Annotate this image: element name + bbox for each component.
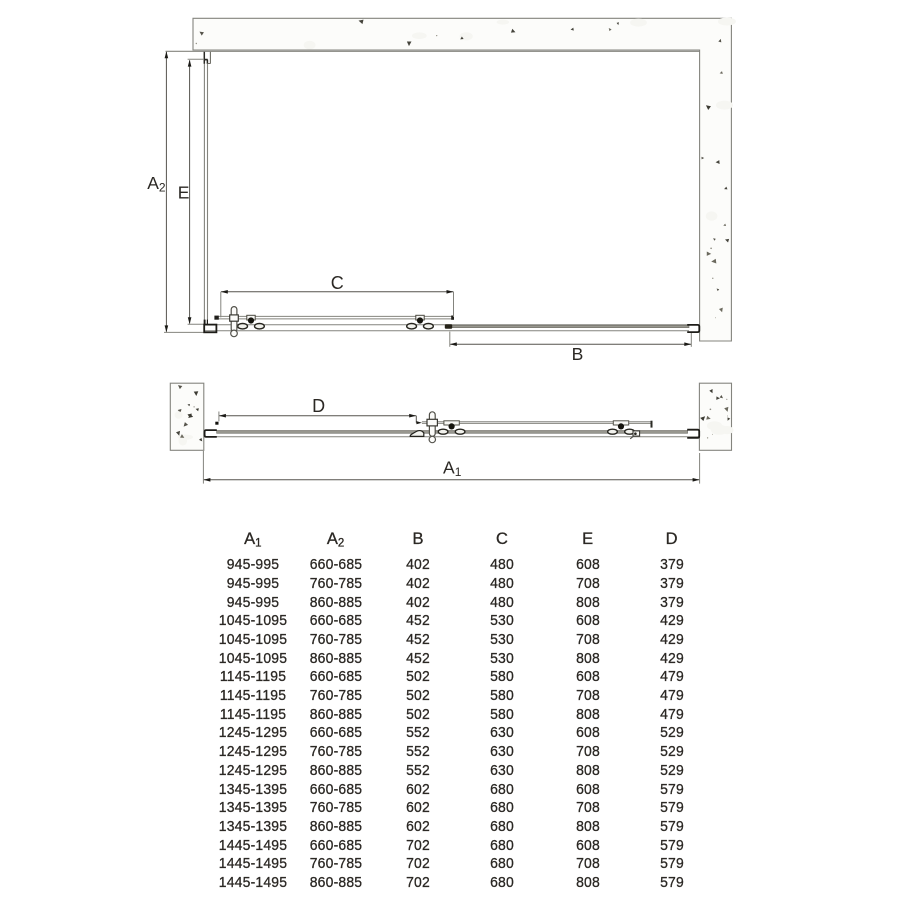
- svg-text:A2: A2: [147, 173, 166, 195]
- svg-text:D: D: [312, 396, 325, 416]
- svg-text:E: E: [178, 182, 190, 202]
- svg-text:A1: A1: [443, 457, 462, 479]
- svg-text:B: B: [572, 344, 584, 364]
- svg-text:C: C: [331, 273, 344, 293]
